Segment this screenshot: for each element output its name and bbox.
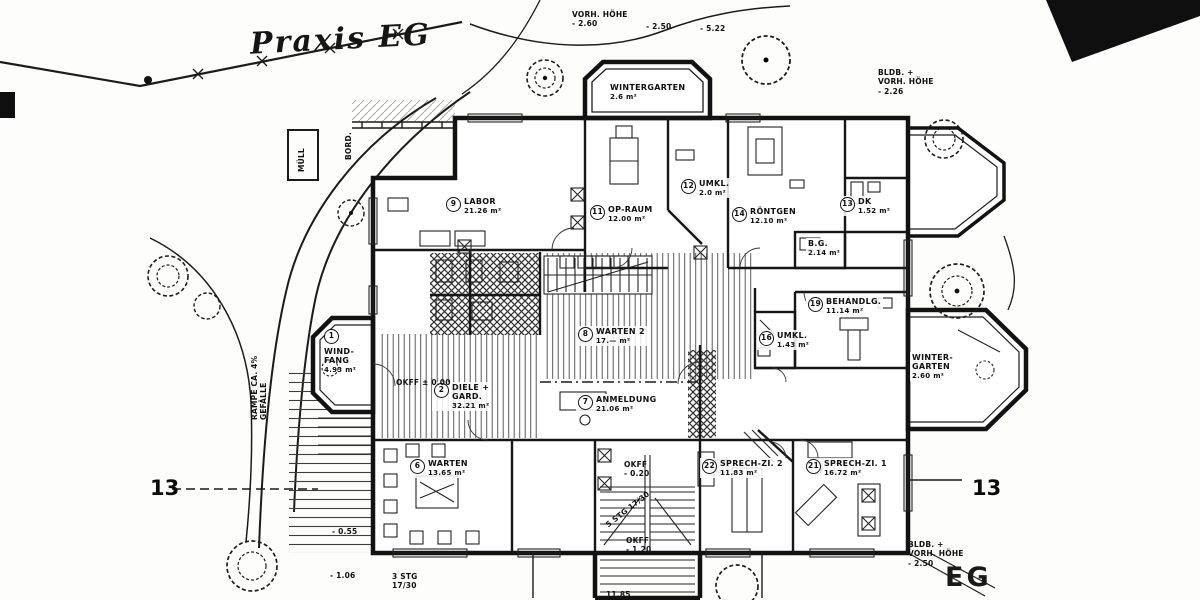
annotation-rampe-ca-4-7: RAMPE CA. 4% GEFÄLLE <box>250 356 269 420</box>
annotation-okff-10: OKFF - 1.20 <box>626 536 651 555</box>
room-label-labor-5: 9LABOR21.26 m² <box>444 196 503 216</box>
room-number-badge: 12 <box>681 179 696 194</box>
annotation-11-85-15: 11.85 <box>606 590 631 599</box>
annotation-3-stg-13: 3 STG 17/30 <box>392 572 418 591</box>
annotation-bldb-3: BLDB. + VORH. HÖHE - 2.26 <box>878 68 934 96</box>
room-label-op-raum-6: 11OP-RAUM12.00 m² <box>588 204 655 224</box>
room-label-winter-garten-16: WINTER- GARTEN2.60 m² <box>910 352 955 381</box>
room-number-badge: 1 <box>324 329 339 344</box>
room-name-and-area: ANMELDUNG21.06 m² <box>596 395 657 413</box>
scanned-floor-plan: Praxis EG 13 13 EG 1WIND- FANG4.93 m²2DI… <box>0 0 1200 600</box>
room-number-badge: 13 <box>840 197 855 212</box>
room-number-badge: 16 <box>759 331 774 346</box>
room-name-and-area: SPRECH-ZI. 211.83 m² <box>720 459 783 477</box>
room-name-and-area: RÖNTGEN12.10 m² <box>750 207 796 225</box>
room-label-warten-2-4: 8WARTEN 217.— m² <box>576 326 647 346</box>
annotation-0-55-11: - 0.55 <box>332 527 357 536</box>
room-label-wintergarten-15: WINTERGARTEN2.6 m² <box>608 82 687 102</box>
room-name-and-area: B.G.2.14 m² <box>808 239 840 257</box>
room-label-dk-8: 13DK1.52 m² <box>838 196 892 216</box>
room-name-and-area: UMKL.2.0 m² <box>699 179 729 197</box>
room-number-badge: 7 <box>578 395 593 410</box>
room-name-and-area: WINTER- GARTEN2.60 m² <box>912 353 953 380</box>
room-number-badge: 14 <box>732 207 747 222</box>
room-name-and-area: WINTERGARTEN2.6 m² <box>610 83 685 101</box>
annotation-okff-0-00-8: OKFF ± 0.00 <box>396 378 451 387</box>
room-number-badge: 19 <box>808 297 823 312</box>
annotation-2-50-1: - 2.50 <box>646 22 671 31</box>
room-name-and-area: UMKL.1.43 m² <box>777 331 809 349</box>
room-number-badge: 6 <box>410 459 425 474</box>
room-label-umkl-7: 12UMKL.2.0 m² <box>679 178 731 198</box>
room-name-and-area: BEHANDLG.11.14 m² <box>826 297 881 315</box>
room-name-and-area: OP-RAUM12.00 m² <box>608 205 653 223</box>
room-name-and-area: SPRECH-ZI. 116.72 m² <box>824 459 887 477</box>
room-number-badge: 22 <box>702 459 717 474</box>
room-number-badge: 9 <box>446 197 461 212</box>
room-name-and-area: WIND- FANG4.93 m² <box>324 347 356 374</box>
room-number-badge: 8 <box>578 327 593 342</box>
annotation-bldb-4: BLDB. + VORH. HÖHE - 2.50 <box>908 540 964 568</box>
labels-layer: 1WIND- FANG4.93 m²2DIELE + GARD.32.21 m²… <box>0 0 1200 600</box>
annotation-5-22-2: - 5.22 <box>700 24 725 33</box>
room-label-sprech-zi-1-14: 21SPRECH-ZI. 116.72 m² <box>804 458 889 478</box>
room-label-umkl-11: 16UMKL.1.43 m² <box>757 330 811 350</box>
annotation-1-06-12: - 1.06 <box>330 571 355 580</box>
room-name-and-area: DK1.52 m² <box>858 197 890 215</box>
annotation-5-stg-17-30-14: 5 STG 17/30 <box>604 489 651 529</box>
room-label-sprech-zi-2-13: 22SPRECH-ZI. 211.83 m² <box>700 458 785 478</box>
room-name-and-area: WARTEN13.65 m² <box>428 459 468 477</box>
annotation-okff-9: OKFF - 0.20 <box>624 460 649 479</box>
room-label-behandlg-12: 19BEHANDLG.11.14 m² <box>806 296 883 316</box>
room-number-badge: 11 <box>590 205 605 220</box>
room-name-and-area: WARTEN 217.— m² <box>596 327 645 345</box>
room-label-r-ntgen-9: 14RÖNTGEN12.10 m² <box>730 206 798 226</box>
room-label-b-g-10: B.G.2.14 m² <box>806 238 842 258</box>
annotation-m-ll-5: MÜLL <box>297 148 306 172</box>
room-label-wind-fang-0: 1WIND- FANG4.93 m² <box>322 328 358 375</box>
room-name-and-area: LABOR21.26 m² <box>464 197 501 215</box>
room-number-badge: 21 <box>806 459 821 474</box>
room-label-anmeldung-3: 7ANMELDUNG21.06 m² <box>576 394 659 414</box>
room-label-warten-2: 6WARTEN13.65 m² <box>408 458 470 478</box>
annotation-vorh-h-he-0: VORH. HÖHE - 2.60 <box>572 10 628 29</box>
room-name-and-area: DIELE + GARD.32.21 m² <box>452 383 489 410</box>
annotation-bord-6: BORD. <box>344 132 353 160</box>
